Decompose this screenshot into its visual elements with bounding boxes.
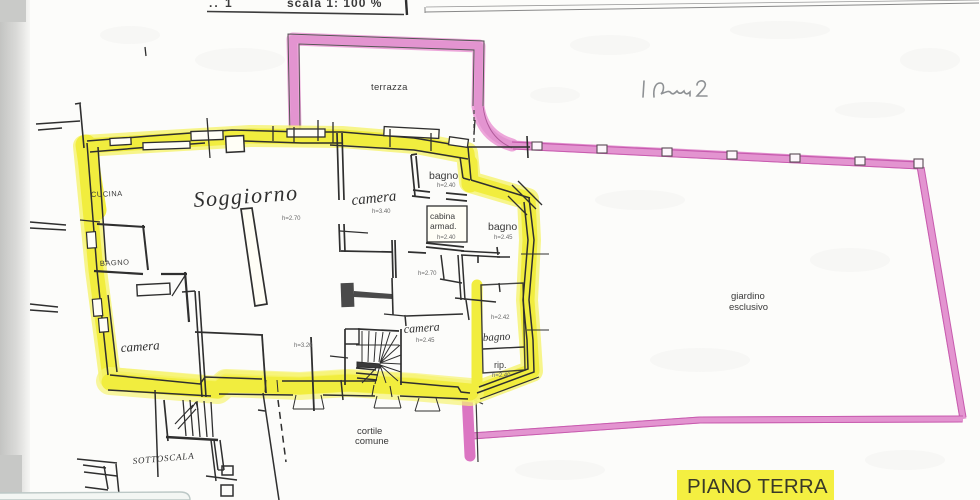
- svg-text:esclusivo: esclusivo: [729, 302, 768, 313]
- svg-text:BAGNO: BAGNO: [100, 257, 130, 268]
- svg-text:rip.: rip.: [494, 360, 507, 370]
- svg-text:cabina: cabina: [430, 211, 455, 221]
- svg-text:h=2.42: h=2.42: [491, 315, 510, 321]
- svg-text:bagno: bagno: [488, 221, 517, 233]
- svg-text:h=2.40: h=2.40: [437, 183, 456, 189]
- svg-text:terrazza: terrazza: [371, 82, 408, 93]
- svg-text:scala 1: 100 %: scala 1: 100 %: [287, 0, 382, 10]
- svg-text:camera: camera: [120, 337, 160, 355]
- svg-text:PIANO TERRA: PIANO TERRA: [687, 475, 828, 498]
- svg-text:h=2.70: h=2.70: [282, 216, 301, 222]
- svg-text:h=2.70: h=2.70: [418, 271, 437, 277]
- svg-text:CUCINA: CUCINA: [91, 189, 123, 199]
- svg-text:giardino: giardino: [731, 291, 765, 302]
- svg-text:comune: comune: [355, 436, 389, 447]
- svg-text:h=3.40: h=3.40: [372, 209, 391, 215]
- svg-text:h=2.40: h=2.40: [437, 235, 456, 241]
- svg-text:.. 1: .. 1: [209, 0, 234, 10]
- svg-text:h=2.45: h=2.45: [494, 235, 513, 241]
- svg-text:h=3.20: h=3.20: [294, 343, 313, 349]
- svg-text:bagno: bagno: [429, 170, 458, 182]
- svg-text:h=2.45: h=2.45: [416, 338, 435, 344]
- svg-text:bagno: bagno: [483, 331, 512, 344]
- svg-text:camera: camera: [403, 320, 440, 336]
- svg-text:armad.: armad.: [430, 221, 456, 231]
- svg-text:h=2.40: h=2.40: [492, 373, 511, 379]
